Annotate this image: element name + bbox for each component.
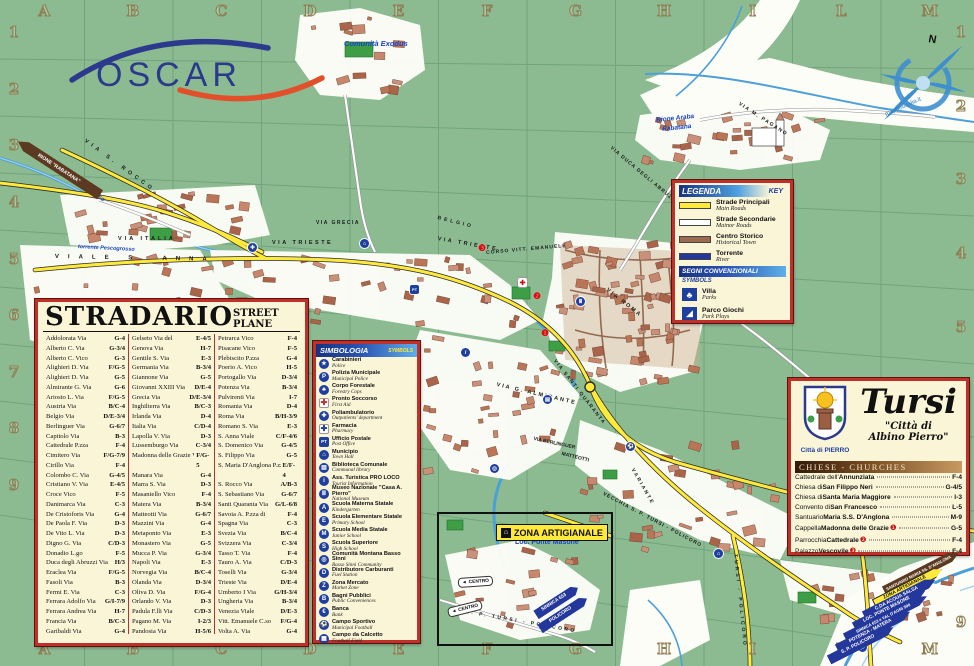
street-index-row: Irlanda ViaD-4 [132,412,211,422]
north-label: N [927,33,937,46]
street-index-row: Cattedrale P.zzaF-4 [46,441,125,451]
street-index-row: S. Filippo ViaG-5 [218,451,297,461]
symbol-item: ▦ Campo da CalcettoFootball Field [316,632,417,645]
symbol-item: ✚ Pronto SoccorsoFirst Aid [316,396,417,409]
symbol-item: P Polizia MunicipaleMunicipal Police [316,370,417,383]
crest-caption: Città di PIERRO [795,447,855,454]
street-index-subtitle: STREET PLANE [233,308,298,330]
street-index-row: Pisacane VicoF-5 [218,344,297,354]
symbol-item: B Bagni PubbliciPublic Conveniences [316,593,417,606]
symbol-item: ▤ Biblioteca ComunaleCommunal library [316,462,417,475]
sign-icon: ♣ [682,288,697,301]
conventional-sign: ♣ VillaParks [679,285,786,304]
tursi-city-map: ABCDEFGHILM ABCDEFGHILM 123456789 123456… [0,0,974,666]
street-index-column-1: Addolorata ViaG-4Alberto C. ViaG-3/4Albe… [43,334,128,634]
street-index-title: STRADARIO [45,304,233,330]
symbols-subtitle: SYMBOLS [388,348,413,354]
street-index-row: Giannone ViaG-5 [132,373,211,383]
legend-header: LEGENDA KEY [679,185,786,197]
street-index-row: Savoia A. P.zza diF-4 [218,510,297,520]
street-index-row: Pulvirenti ViaI-7 [218,393,297,403]
compass-rose: N mappeditalia.it [868,28,974,133]
street-index-row: Gentile S. ViaE-3 [132,354,211,364]
street-index-row: S. Sebastiano ViaG-6/7 [218,490,297,500]
street-index-row: Francia ViaB/C-3 [46,617,125,627]
street-index-row: Fasoli ViaB-3 [46,578,125,588]
street-index-row: Tauro A. ViaC/D-3 [218,558,297,568]
church-row: Cappella Madonna delle Grazie❶ G-5 [795,523,962,534]
churches-list: Cattedrale dell'Annunziata F-4 Chiesa di… [795,473,962,557]
symbols-panel-header: SIMBOLOGIA SYMBOLS [316,344,417,357]
legend-line: Strade PrincipaliMain Roads [679,197,786,214]
street-index-row: Olanda ViaD-3/4 [132,578,211,588]
symbol-icon: Z [319,581,329,591]
stadium-icon: ⚽ [626,442,635,451]
street-index-row: Volta A. ViaG-4 [218,627,297,635]
street-index-row: Alberto C. ViaG-3/4 [46,344,125,354]
road-label: VIA TRIESTE [272,241,333,247]
street-index-row: Cimitero ViaF/G-7/9 [46,451,125,461]
legend-lines: Strade PrincipaliMain Roads Strade Secon… [679,197,786,265]
street-index-row: Duca degli Abruzzi ViaH/3 [46,558,125,568]
city-name: Tursi [855,383,962,421]
symbol-item: ✚ PoliambulatorioOutpatients' department [316,409,417,422]
street-index-row: Colombo C. ViaG-4/5 [46,471,125,481]
church-marker-2: ❷ [533,292,541,301]
municipio-icon: ⌂ [360,239,369,248]
street-index-row: Genova ViaH-7 [132,344,211,354]
street-index-row: Santi Quaranta ViaG/L-6/8 [218,500,297,510]
compass-center [916,76,930,90]
street-index-row: Alighieri D. ViaG-5 [46,373,125,383]
symbols-list: ★ CarabinieriPolice P Polizia Municipale… [316,357,417,645]
conventional-signs-subtitle: SYMBOLS [679,277,786,285]
street-index-row: Romano S. ViaE-3 [218,422,297,432]
street-index-row: Pagano M. ViaI-2/3 [132,617,211,627]
church-marker-3: ❸ [478,244,486,253]
comunita-exodus-label: Comunità Exodus [344,40,408,48]
symbol-icon: D [319,568,329,578]
comunita-montana-icon: ◎ [490,464,499,473]
church-row: Parrocchia Cattedrale❷ F-4 [795,535,962,546]
pro-loco-icon: i [461,348,470,357]
street-index-row: Poerio A. VicoH-5 [218,363,297,373]
street-index-row: Vitt. Emanuele C.soF/G-4 [218,617,297,627]
street-index-row: Almirante G. ViaG-6 [46,383,125,393]
symbol-icon: i [319,476,329,486]
sign-icon: ◢ [682,307,697,320]
street-index-row: Gelseto Via delE-4/5 [132,334,211,344]
street-index-row: Eraclea ViaF/G-5 [46,568,125,578]
legend-key-label: KEY [769,188,783,195]
symbol-icon: ★ [319,359,329,369]
street-index-column-2: Gelseto Via delE-4/5Genova ViaH-7Gentile… [128,334,214,634]
symbol-item: ◎ Comunità Montana Basso SinniBasso Sinn… [316,553,417,566]
street-index-row: Napoli ViaE-3 [132,558,211,568]
legend-swatch [679,236,711,243]
street-index-header: STRADARIO STREET PLANE [43,304,300,332]
legend-title: LEGENDA [682,187,721,196]
street-index-row: Cristiano V. ViaE-4/5 [46,480,125,490]
symbol-icon: M [319,529,329,539]
street-index-row: S. Rocco ViaA/B-3 [218,480,297,490]
symbol-icon: € [319,607,329,617]
left-arrow-icon: ◄ [451,608,457,614]
street-index-row: Toselli ViaG-3/4 [218,568,297,578]
street-index-row: Alighieri D. ViaF/G-5 [46,363,125,373]
street-index-row: Manara ViaG-4 [132,471,211,481]
street-index-row: Ferrara Adolfo ViaG/I-7/9 [46,597,125,607]
zona-artigianale-text: ZONA ARTIGIANALE [514,528,603,538]
city-motto-line1: "Città di [855,421,962,432]
street-index-row: S. Domenico ViaG-4/5 [218,441,297,451]
church-row: Palazzo Vescovile❸ F-4 [795,546,962,557]
factory-icon: ⌂ [501,528,511,538]
street-index-row: Spagna ViaC-3 [218,519,297,529]
symbol-icon: E [319,516,329,526]
street-index-row: Pandosia ViaH-5/6 [132,627,211,635]
legend-swatch [679,202,711,209]
street-index-row: Grecia ViaD/E-3/4 [132,393,211,403]
street-index-row: Garibaldi ViaG-4 [46,627,125,635]
conventional-signs-list: ♣ VillaParks ◢ Parco GiochiPark Plays [679,285,786,323]
legend-swatch [679,253,711,260]
street-index-row: Monastero ViaG-5 [132,539,211,549]
street-index-row: Tasso T. ViaF-4 [218,549,297,559]
street-index-row: S. Anna VialeC/F-4/6 [218,432,297,442]
churches-band: CHIESE - CHURCHES [795,461,962,473]
street-index-row: Roma ViaB/H-3/9 [218,412,297,422]
street-index-row: Belgio ViaD/E-3/4 [46,412,125,422]
street-index-column-3: Petrarca VicoF-4Pisacane VicoF-5Plebisci… [214,334,300,634]
street-index-row: Mazzini ViaG-4 [132,519,211,529]
street-index-row: Plebiscito P.zzaG-4 [218,354,297,364]
street-index-row: Lussemburgo ViaC-3/4 [132,441,211,451]
symbol-icon: B [319,594,329,604]
museum-icon: Ⅲ [576,297,585,306]
street-index-row: Petrarca VicoF-4 [218,334,297,344]
street-index-row: Ungheria ViaB-3/4 [218,597,297,607]
library-icon: ▤ [543,395,552,404]
city-crest: Città di PIERRO [795,383,855,459]
street-index-row: Croce VicoF-5 [46,490,125,500]
zona-artigianale-label: ⌂ ZONA ARTIGIANALE [496,524,608,541]
symbol-item: D Distributore CarburantiFuel Station [316,567,417,580]
street-index-row: Norvegia ViaB/C-4 [132,568,211,578]
street-index-row: Madonna delle Grazie ViaF/G-5 [132,451,211,471]
symbol-item: ♣ Corpo ForestaleForestry Cops [316,383,417,396]
symbol-item: € BancaBank [316,606,417,619]
symbol-item: E Scuola Elementare StatalePrimary Schoo… [316,514,417,527]
street-index-row: Germania ViaB-3/4 [132,363,211,373]
symbol-icon: ♣ [319,385,329,395]
legend-panel: LEGENDA KEY Strade PrincipaliMain Roads … [672,180,793,323]
street-index-row: S. Maria D'Anglona P.zzaE/F-4 [218,461,297,481]
symbol-icon: Ⅲ [319,489,329,499]
oscar-logo: OSCAR [60,26,340,111]
street-index-row: Matera ViaB-3/4 [132,500,211,510]
symbol-item: ⚽ Campo SportivoMunicipal Football [316,619,417,632]
symbols-title: SIMBOLOGIA [320,346,368,355]
street-index-panel: STRADARIO STREET PLANE Addolorata ViaG-4… [35,299,308,646]
street-index-row: Svezia ViaB/C-4 [218,529,297,539]
symbol-icon: ⌂ [319,450,329,460]
street-index-row: Alberto C. VicoG-3 [46,354,125,364]
street-index-row: Oliva D. ViaF/G-4 [132,588,211,598]
symbols-panel: SIMBOLOGIA SYMBOLS ★ CarabinieriPolice P… [313,341,420,643]
logo-text: OSCAR [96,56,242,94]
legend-line: Centro StoricoHistorical Town [679,231,786,248]
symbol-icon: PT [319,437,329,447]
left-arrow-icon: ◄ [462,580,467,585]
symbol-icon: P [319,372,329,382]
street-index-row: De Paola F. ViaD-3 [46,519,125,529]
street-index-row: Lapolla V. ViaD-3 [132,432,211,442]
street-index-row: Umberto I ViaG/H-3/4 [218,588,297,598]
symbol-item: ⌂ MunicipioTown Hall [316,449,417,462]
symbol-item: M Scuola Media StataleJunior School [316,527,417,540]
street-index-row: Masaniello VicoF-4 [132,490,211,500]
street-index-row: Orlando V. ViaD-3 [132,597,211,607]
road-label: VIA GRECIA [316,221,360,226]
street-index-row: Giovanni XXIII ViaD/E-4 [132,383,211,393]
street-index-row: Venezia VialeD/E-3 [218,607,297,617]
church-row: Chiesa di Santa Maria Maggiore I-3 [795,493,962,503]
street-index-row: Padula F.lli ViaC/D-3 [132,607,211,617]
conventional-sign: ◢ Parco GiochiPark Plays [679,304,786,323]
symbol-item: ✚ FarmaciaPharmacy [316,422,417,435]
school-icon: ⌂ [714,549,723,558]
street-index-row: Cirillo ViaF-4 [46,461,125,471]
symbol-icon: ✚ [319,424,329,434]
legend-line: TorrenteRiver [679,248,786,265]
church-row: Santuario Maria S.S. D'Anglona M-9 [795,513,962,523]
road-label: VIA ITALIA [118,237,176,243]
street-index-row: Potenza ViaB-3/4 [218,383,297,393]
street-index-row: Donadio L.goF-5 [46,549,125,559]
street-index-row: Metaponto ViaE-3 [132,529,211,539]
symbol-icon: ▤ [319,463,329,473]
street-index-row: Ariosto L. ViaF/G-5 [46,393,125,403]
symbol-item: PT Ufficio PostalePost Office [316,436,417,449]
symbol-icon: ✚ [319,411,329,421]
symbol-item: Ⅲ Museo Nazionale "Casa A. Pierro"Nation… [316,488,417,501]
street-index-row: Danimarca ViaC-3 [46,500,125,510]
farmacia-icon: ✚ [248,243,257,252]
street-index-row: Italia ViaC/D-4 [132,422,211,432]
street-index-row: Inghilterra ViaB/C-3 [132,402,211,412]
first-aid-icon: ✚ [518,278,527,287]
street-index-row: Portogallo ViaD-3/4 [218,373,297,383]
post-office-icon: PT [410,285,419,294]
symbol-icon: ⚽ [319,620,329,630]
symbol-icon: ▦ [319,634,329,644]
symbol-icon: ✚ [319,398,329,408]
street-index-row: Matteotti ViaG-6/7 [132,510,211,520]
street-index-row: Fermi E. ViaC-3 [46,588,125,598]
church-row: Chiesa di San Filippo Neri G-4/5 [795,483,962,493]
legend-swatch [679,219,711,226]
street-index-row: Austria ViaB/C-4 [46,402,125,412]
street-index-row: Berlinguer ViaG-6/7 [46,422,125,432]
church-row: Convento di San Francesco L-5 [795,503,962,513]
conventional-signs-band: SEGNI CONVENZIONALI [679,266,786,277]
street-index-row: Addolorata ViaG-4 [46,334,125,344]
legend-line: Strade SecondarieMainor Roads [679,214,786,231]
street-index-row: De Vito L. ViaD-3 [46,529,125,539]
street-index-row: Ferrara Andrea ViaH-7 [46,607,125,617]
street-index-row: Mucca P. ViaG-3/4 [132,549,211,559]
street-index-row: De Cristoforis ViaG-4 [46,510,125,520]
symbol-item: Z Zona MercatoMarket Zone [316,580,417,593]
symbol-icon: S [319,542,329,552]
symbol-item: ★ CarabinieriPolice [316,357,417,370]
symbol-icon: A [319,503,329,513]
street-index-row: Marra S. ViaD-3 [132,480,211,490]
street-index-row: Romania ViaD-4 [218,402,297,412]
symbol-item: A Scuola Materna StataleKindergarten [316,501,417,514]
street-index-row: Svizzera ViaC-3/4 [218,539,297,549]
symbol-icon: ◎ [319,555,329,565]
street-index-row: Digno G. ViaC/D-3 [46,539,125,549]
church-row: Cattedrale dell'Annunziata F-4 [795,473,962,483]
church-marker-1: ❶ [541,329,549,338]
street-index-row: Trieste ViaD/E-4 [218,578,297,588]
tursi-panel: Città di PIERRO Tursi "Città di Albino P… [788,378,969,555]
street-index-row: Capitolo ViaB-3 [46,432,125,442]
city-motto-line2: Albino Pierro" [855,432,962,443]
